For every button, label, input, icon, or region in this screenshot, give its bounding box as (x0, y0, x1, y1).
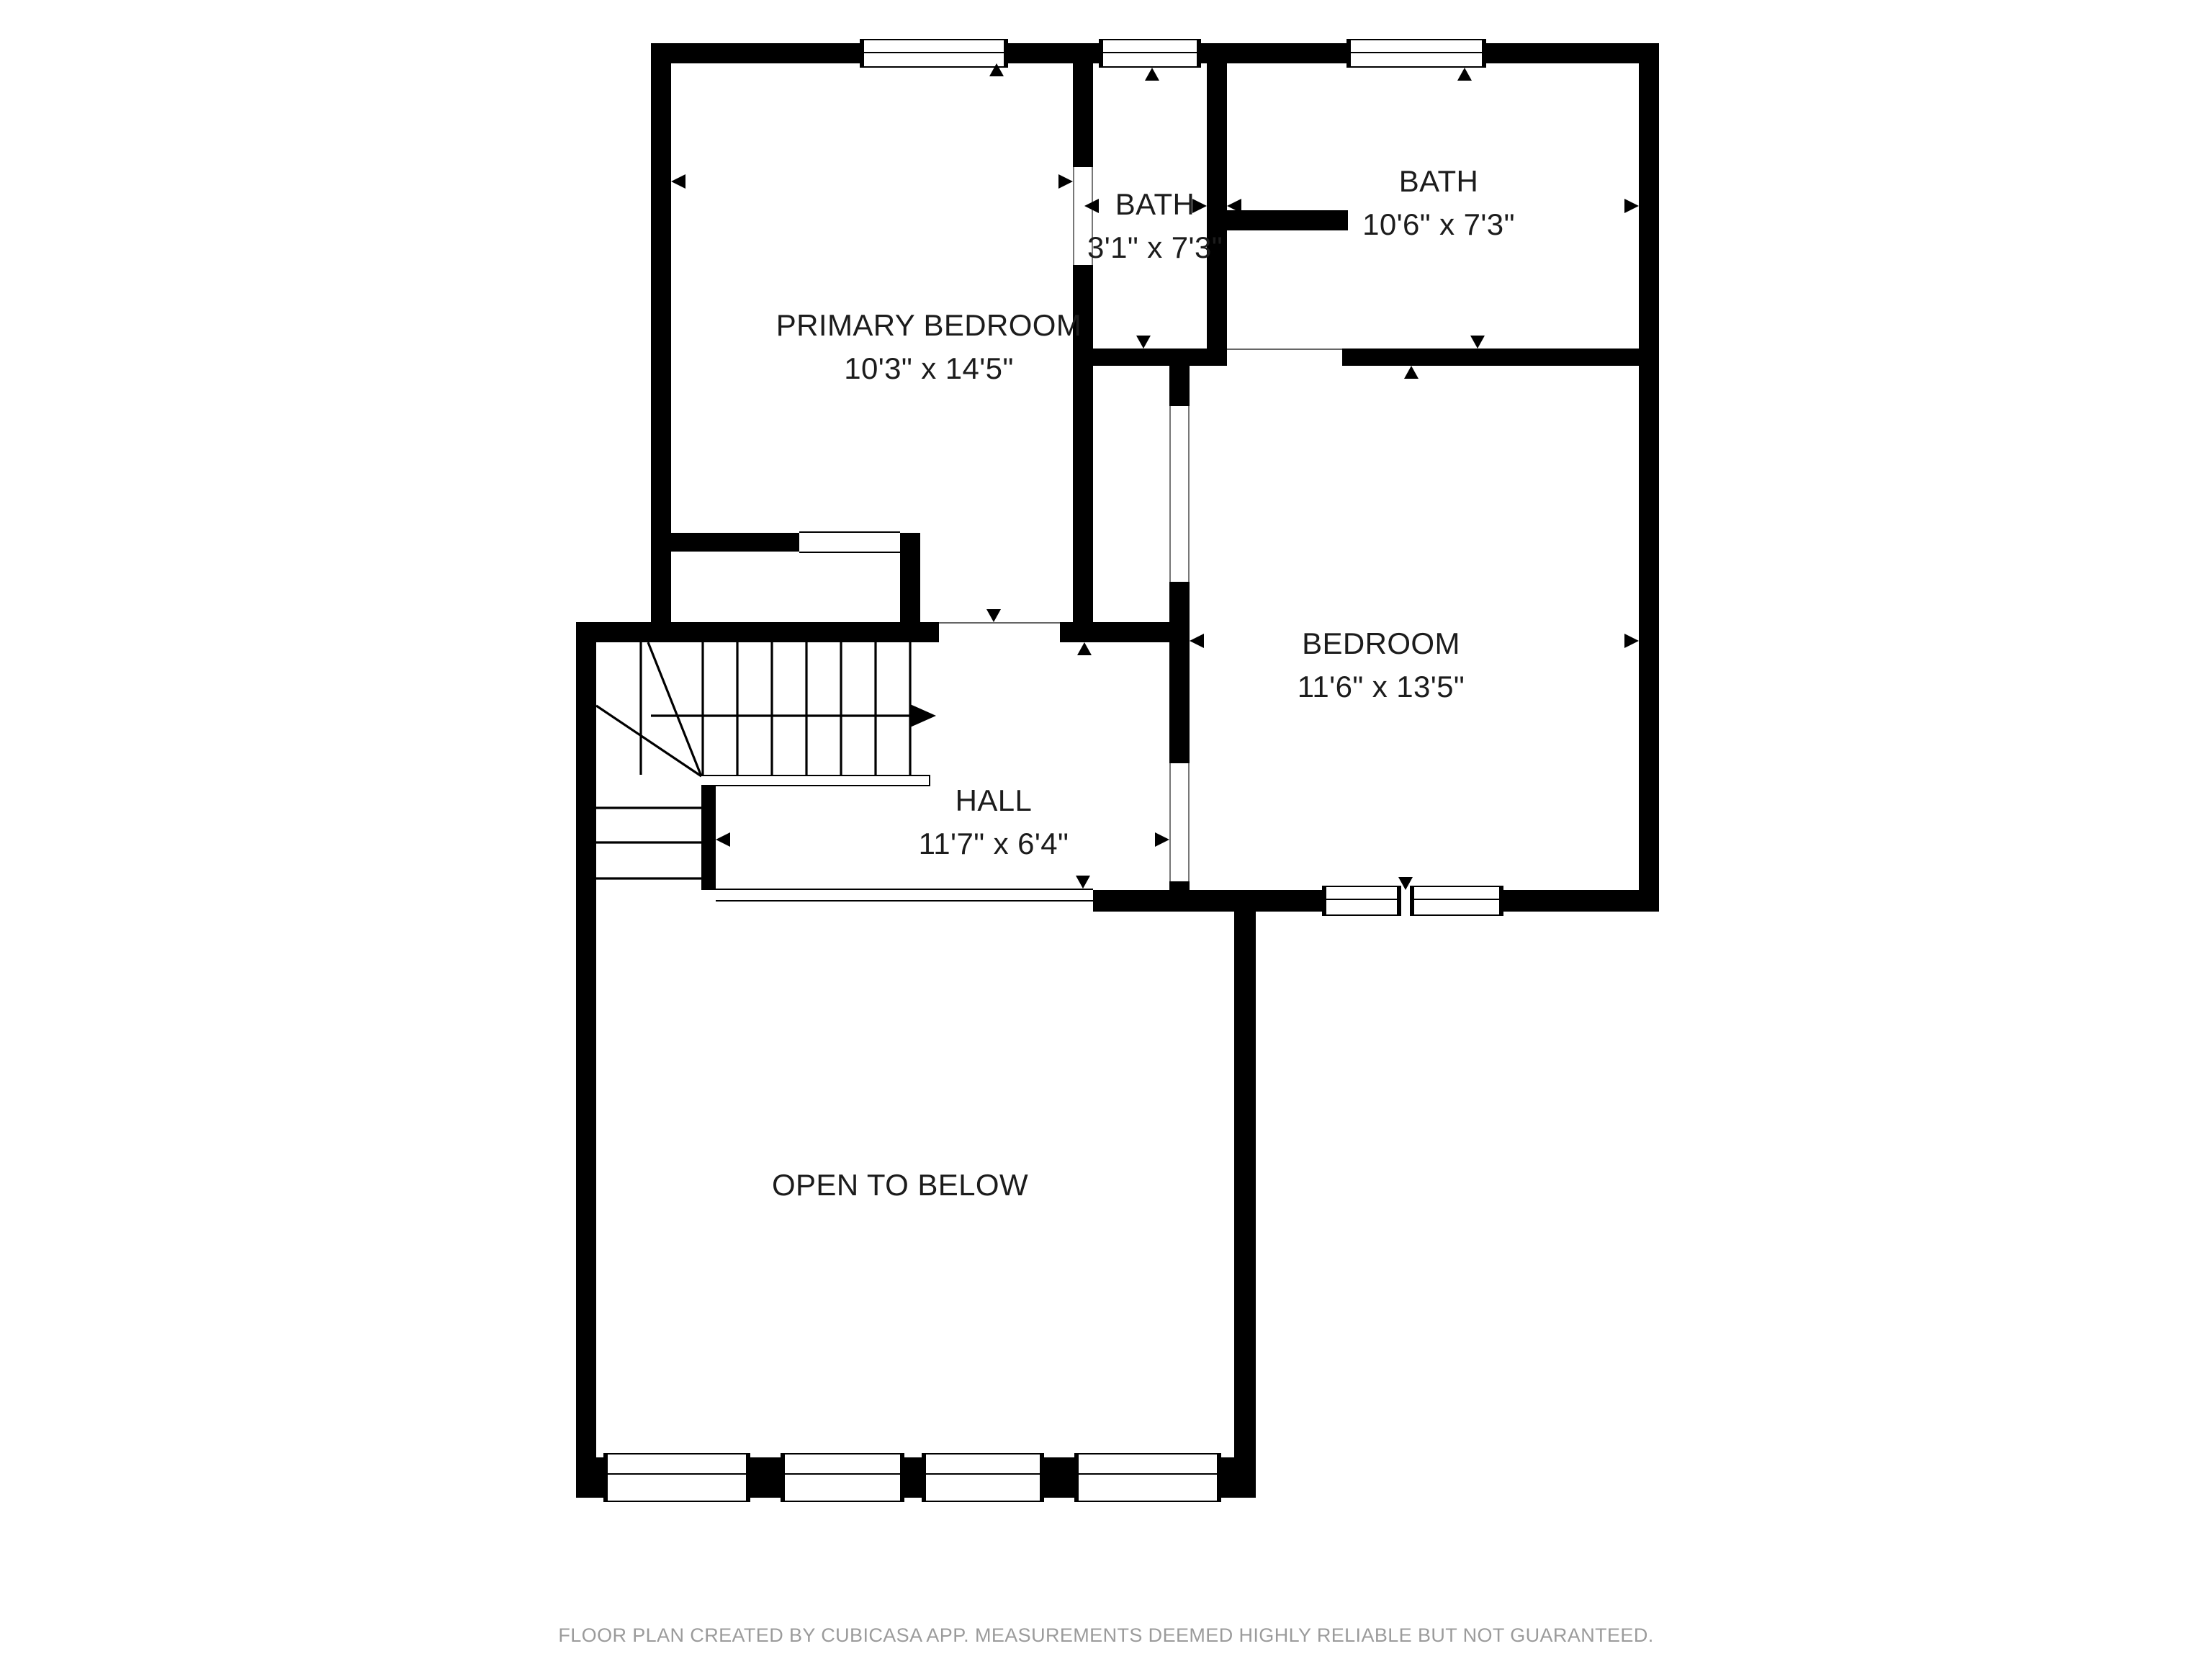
dim-arrow-right-icon (1155, 832, 1169, 847)
dim-arrow-down-icon (986, 609, 1001, 622)
room-name: OPEN TO BELOW (772, 1165, 1028, 1208)
room-label-primary-bedroom: PRIMARY BEDROOM 10'3" x 14'5" (776, 305, 1082, 392)
stairs-up-arrow (910, 704, 936, 727)
dim-arrow-left-icon (1190, 634, 1204, 648)
room-label-bedroom: BEDROOM 11'6" x 13'5" (1298, 624, 1465, 710)
dim-arrow-down-icon (1136, 336, 1151, 349)
dim-arrow-up-icon (1457, 68, 1472, 81)
room-dimensions: 10'6" x 7'3" (1362, 204, 1515, 248)
dim-arrow-right-icon (1058, 174, 1073, 189)
room-label-bath-small: BATH 3'1" x 7'3" (1087, 184, 1223, 271)
dim-arrow-down-icon (1470, 336, 1485, 349)
room-label-hall: HALL 11'7" x 6'4" (919, 781, 1069, 867)
dim-arrow-up-icon (1077, 642, 1092, 655)
dim-arrow-left-icon (1227, 199, 1241, 213)
dim-arrow-down-icon (1398, 877, 1413, 890)
dim-arrow-right-icon (1624, 634, 1639, 648)
footer-disclaimer: FLOOR PLAN CREATED BY CUBICASA APP. MEAS… (558, 1624, 1653, 1646)
room-name: PRIMARY BEDROOM (776, 305, 1082, 349)
room-dimensions: 10'3" x 14'5" (776, 349, 1082, 392)
room-dimensions: 11'7" x 6'4" (919, 824, 1069, 867)
dim-arrow-up-icon (989, 63, 1004, 76)
room-name: BATH (1362, 161, 1515, 204)
room-label-bath-large: BATH 10'6" x 7'3" (1362, 161, 1515, 248)
dim-arrow-right-icon (1624, 199, 1639, 213)
dim-arrow-up-icon (1145, 68, 1159, 81)
room-dimensions: 11'6" x 13'5" (1298, 667, 1465, 710)
room-name: HALL (919, 781, 1069, 824)
room-label-open-to-below: OPEN TO BELOW (772, 1165, 1028, 1208)
dim-arrow-up-icon (1404, 366, 1419, 379)
floor-plan: PRIMARY BEDROOM 10'3" x 14'5" BATH 3'1" … (0, 0, 2212, 1659)
dim-arrow-down-icon (1076, 876, 1090, 889)
room-name: BATH (1087, 184, 1223, 228)
dim-arrow-left-icon (671, 174, 685, 189)
room-dimensions: 3'1" x 7'3" (1087, 228, 1223, 271)
dim-arrow-left-icon (716, 832, 730, 847)
room-name: BEDROOM (1298, 624, 1465, 667)
